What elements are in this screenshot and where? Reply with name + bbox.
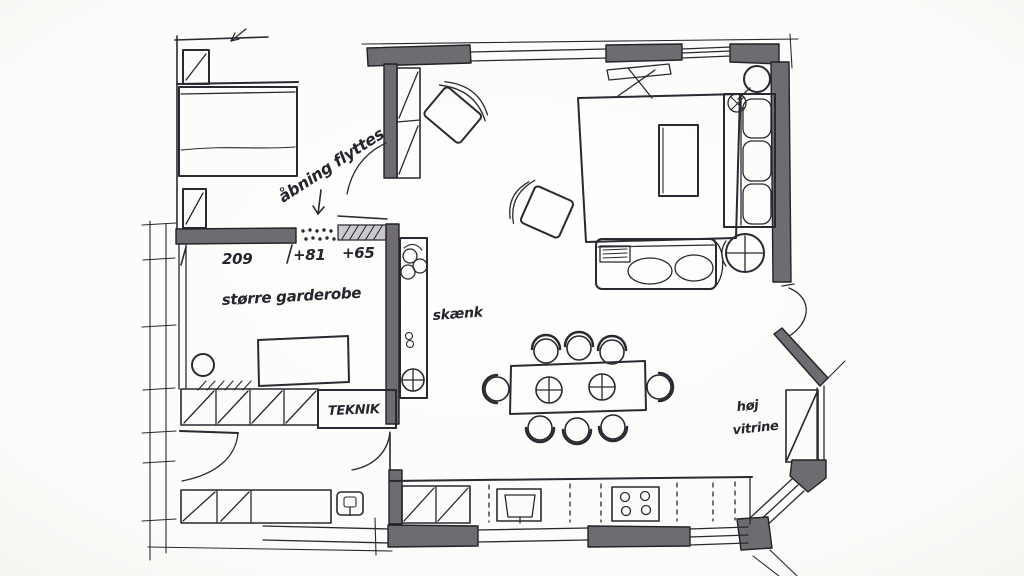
wall-entry-vertical	[384, 64, 397, 178]
label-utility: TEKNIK	[328, 402, 382, 419]
label-dim-65: +65	[342, 244, 375, 262]
wall-bedroom-wardrobe	[176, 228, 296, 244]
wall-hatched	[338, 225, 386, 240]
label-dim-81: +81	[293, 246, 326, 264]
sideboard-dial	[402, 369, 424, 391]
floor-plan-sketch: åbning flyttes 209 +81 +65 større garder…	[0, 0, 1024, 576]
label-dim-209: 209	[222, 250, 252, 268]
bay-post-lower	[737, 517, 772, 550]
wall-kitchen-west	[386, 224, 399, 424]
wall-kitchen-west-post	[389, 470, 402, 524]
label-tall-cabinet-1: høj	[736, 398, 760, 415]
floorplan-svg: åbning flyttes 209 +81 +65 større garder…	[0, 0, 1024, 576]
